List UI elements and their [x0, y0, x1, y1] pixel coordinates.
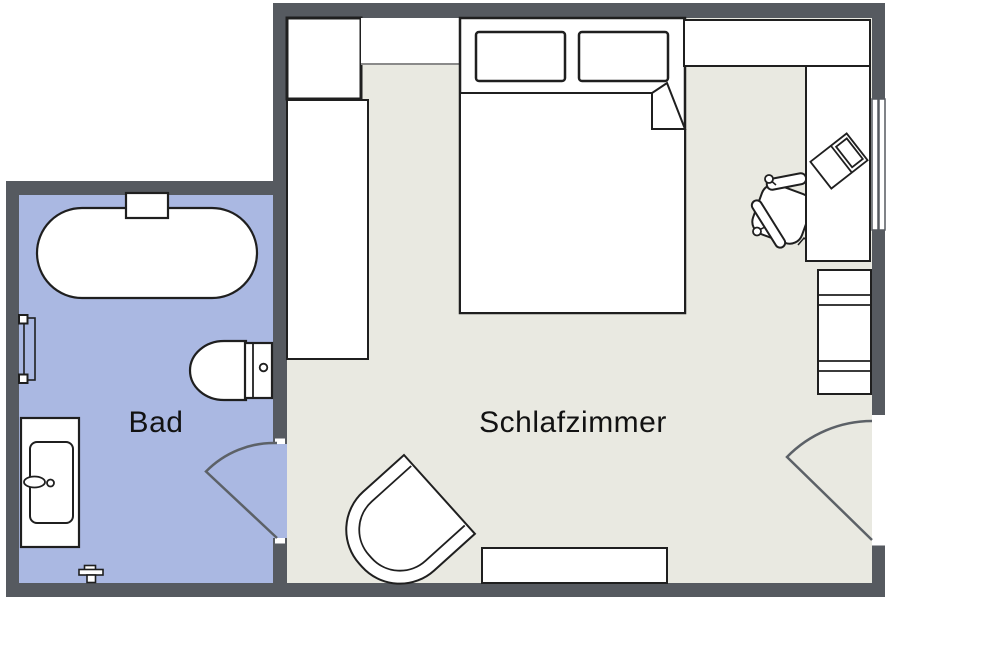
floor-plan-canvas — [0, 0, 1000, 671]
double-bed — [460, 18, 685, 313]
radiator-bracket-bottom — [19, 375, 28, 384]
toilet — [190, 341, 272, 400]
nightstand — [287, 18, 361, 99]
radiator-bracket-top — [19, 315, 28, 324]
top-cabinet — [684, 20, 870, 66]
toilet-tank — [245, 343, 272, 398]
sink-drain — [47, 480, 54, 487]
wall-right-middle — [872, 230, 885, 420]
dresser — [818, 270, 871, 394]
schlafzimmer-room-label: Schlafzimmer — [479, 408, 667, 438]
wall-right-upper — [872, 3, 885, 99]
bathtub — [37, 193, 257, 298]
valve-stem — [87, 575, 96, 583]
wall-interior-upper — [273, 3, 287, 444]
chair-knob-top — [765, 175, 773, 183]
window-right-wall — [872, 99, 885, 230]
floor-plan: Bad Schlafzimmer — [0, 0, 1000, 671]
bench — [482, 548, 667, 583]
wall-interior-lower — [273, 538, 287, 583]
wall-bottom — [6, 583, 885, 597]
wall-right-lower — [872, 540, 885, 597]
wall-left — [6, 181, 19, 597]
bathtub-faucet — [126, 193, 168, 218]
bad-room-label: Bad — [129, 408, 184, 438]
wall-top — [273, 3, 885, 18]
wall-shelf — [361, 18, 460, 64]
sink-faucet — [24, 477, 45, 488]
entry-door-jamb-top — [872, 415, 885, 421]
bad-door-jamb-bottom — [275, 538, 285, 544]
toilet-flush-button — [260, 364, 268, 372]
wardrobe — [287, 100, 368, 359]
bad-door-opening-floor — [273, 444, 287, 538]
chair-knob-bottom — [753, 228, 761, 236]
valve-bar — [79, 570, 103, 576]
entry-door-jamb-bottom — [872, 540, 885, 546]
bathtub-basin — [37, 208, 257, 298]
toilet-bowl — [190, 341, 246, 400]
pillow-left — [476, 32, 565, 81]
sink-vanity — [21, 418, 79, 547]
pillow-right — [579, 32, 668, 81]
